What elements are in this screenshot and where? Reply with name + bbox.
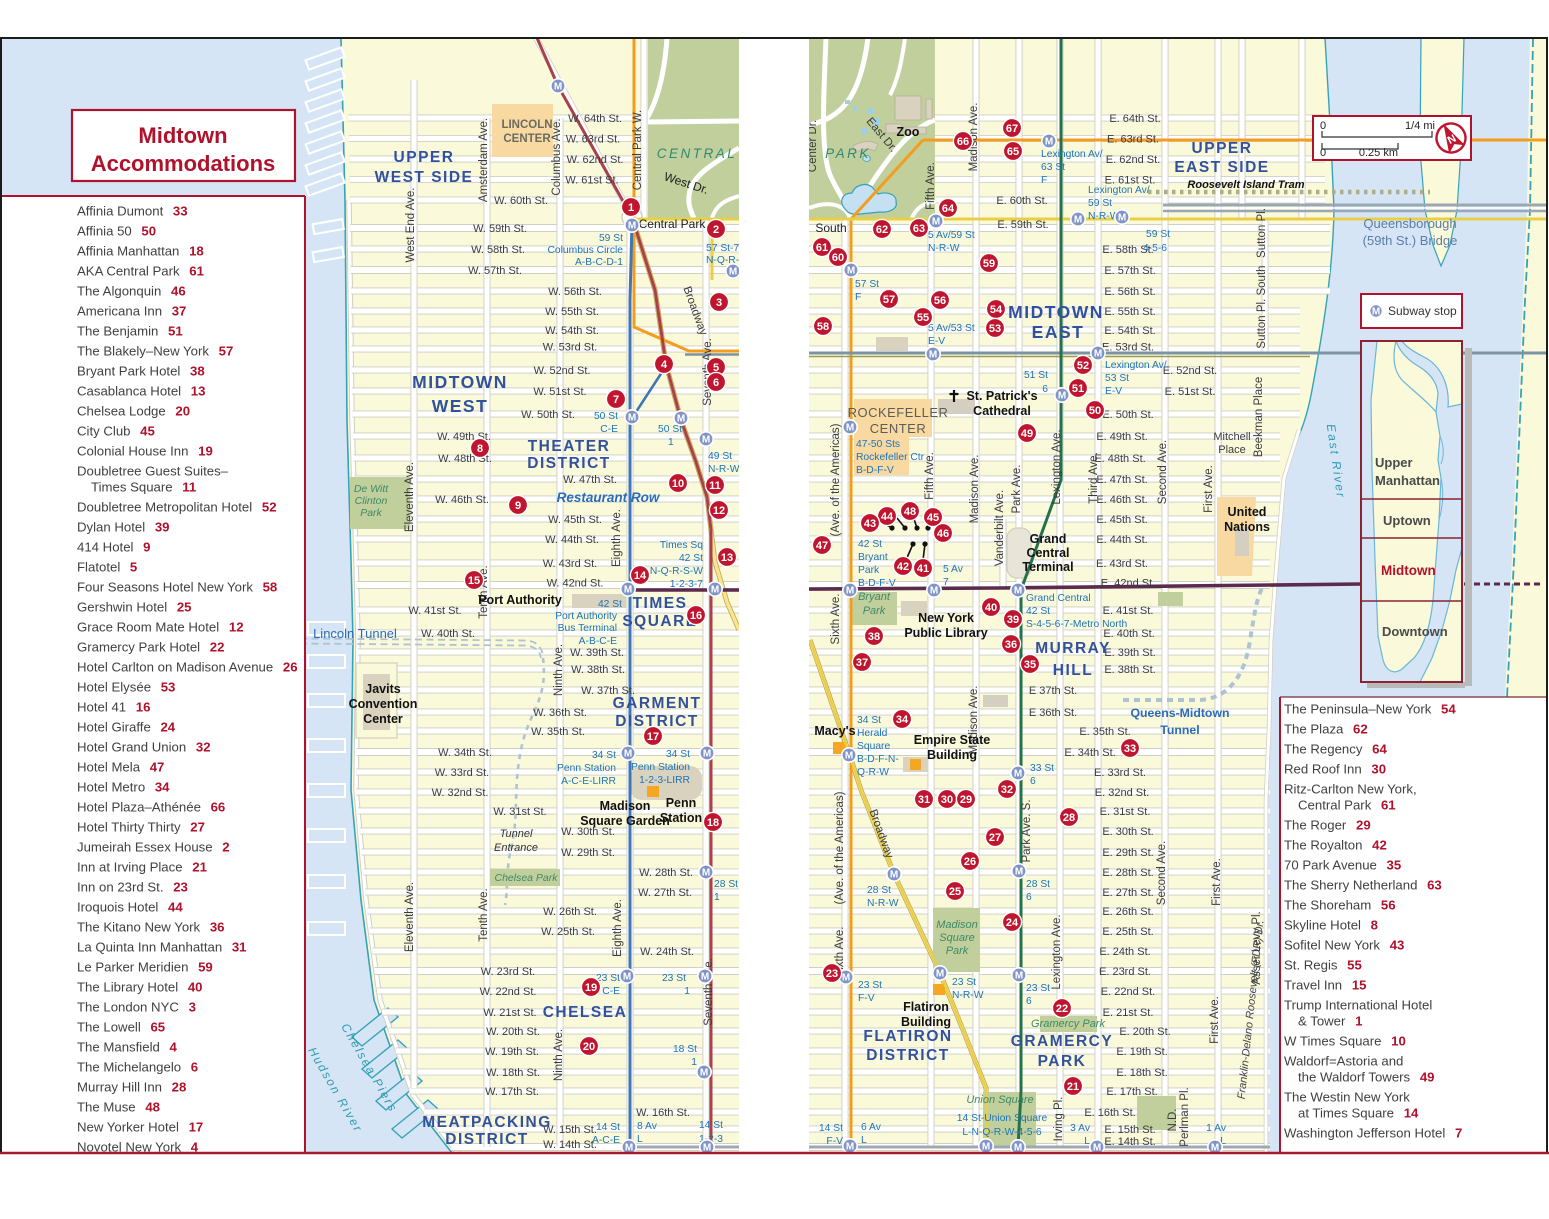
svg-text:E. 50th St.: E. 50th St. <box>1102 409 1153 421</box>
svg-text:Convention: Convention <box>349 697 418 711</box>
svg-text:W. 39th St.: W. 39th St. <box>570 647 624 659</box>
svg-text:MIDTOWN: MIDTOWN <box>1008 302 1104 322</box>
svg-text:E. 32nd St.: E. 32nd St. <box>1095 787 1149 799</box>
svg-text:31: 31 <box>918 794 930 806</box>
svg-text:W. 34th St.: W. 34th St. <box>438 747 492 759</box>
svg-text:West End Ave.: West End Ave. <box>405 187 417 262</box>
svg-text:Cathedral: Cathedral <box>973 404 1031 418</box>
svg-text:Manhattan: Manhattan <box>1375 473 1440 488</box>
svg-text:W. 47th St.: W. 47th St. <box>563 474 617 486</box>
svg-text:M: M <box>1372 307 1380 318</box>
svg-text:Square: Square <box>857 741 890 752</box>
svg-text:Lexington Av/: Lexington Av/ <box>1105 360 1167 371</box>
svg-text:42 St: 42 St <box>598 599 622 610</box>
svg-text:M: M <box>929 350 937 361</box>
svg-text:CENTER: CENTER <box>870 421 926 436</box>
svg-text:W. 24th St.: W. 24th St. <box>640 946 694 958</box>
svg-text:Mitchell: Mitchell <box>1213 431 1250 443</box>
svg-text:Central: Central <box>1026 546 1069 560</box>
svg-text:E. 27th St.: E. 27th St. <box>1102 887 1153 899</box>
svg-text:Doubletree Metropolitan Hotel: Doubletree Metropolitan Hotel 52 <box>77 500 277 515</box>
svg-text:M: M <box>1094 349 1102 360</box>
svg-text:Second Ave.: Second Ave. <box>1156 841 1168 905</box>
svg-text:Hotel Giraffe 24: Hotel Giraffe 24 <box>77 720 176 735</box>
svg-text:Eleventh Ave.: Eleventh Ave. <box>404 882 416 952</box>
svg-text:MIDTOWN: MIDTOWN <box>412 372 508 392</box>
svg-text:C-E: C-E <box>600 424 618 435</box>
svg-text:46: 46 <box>937 528 949 540</box>
svg-text:EAST: EAST <box>1032 322 1085 342</box>
svg-text:E 36th St.: E 36th St. <box>1029 707 1077 719</box>
svg-text:26: 26 <box>964 856 976 868</box>
svg-text:E. 41st St.: E. 41st St. <box>1103 605 1154 617</box>
svg-text:14 St: 14 St <box>596 1122 620 1133</box>
svg-text:La Quinta Inn Manhattan 31: La Quinta Inn Manhattan 31 <box>77 940 247 955</box>
svg-text:25: 25 <box>949 886 961 898</box>
svg-text:The Mansfield 4: The Mansfield 4 <box>77 1040 178 1055</box>
svg-text:Third Ave.: Third Ave. <box>1088 452 1100 504</box>
svg-text:Washington Jefferson Hotel 7: Washington Jefferson Hotel 7 <box>1284 1126 1462 1141</box>
svg-text:50 St: 50 St <box>658 424 682 435</box>
svg-text:Ninth Ave.: Ninth Ave. <box>553 1029 565 1081</box>
svg-text:30: 30 <box>941 794 953 806</box>
svg-text:E. 46th St.: E. 46th St. <box>1096 494 1147 506</box>
svg-text:M: M <box>1014 769 1022 780</box>
svg-text:Place: Place <box>1218 444 1246 456</box>
svg-text:W. 40th St.: W. 40th St. <box>421 628 475 640</box>
svg-text:F-V: F-V <box>826 1136 843 1147</box>
svg-text:M: M <box>1015 867 1023 878</box>
svg-text:W. 42nd St.: W. 42nd St. <box>547 577 604 589</box>
svg-text:The Kitano New York 36: The Kitano New York 36 <box>77 920 225 935</box>
svg-text:Beekman Place: Beekman Place <box>1253 377 1265 458</box>
svg-text:E. 23rd St.: E. 23rd St. <box>1099 966 1151 978</box>
svg-text:58: 58 <box>817 321 829 333</box>
svg-text:A-B-C-D-1: A-B-C-D-1 <box>575 257 623 268</box>
svg-text:E. 22nd St.: E. 22nd St. <box>1101 986 1155 998</box>
svg-text:Midtown: Midtown <box>1381 563 1436 578</box>
svg-text:Accommodations: Accommodations <box>91 151 276 176</box>
svg-text:32: 32 <box>1001 784 1013 796</box>
svg-text:E. 51st St.: E. 51st St. <box>1165 386 1216 398</box>
svg-text:Midtown: Midtown <box>138 123 227 148</box>
svg-text:Amsterdam Ave.: Amsterdam Ave. <box>478 118 490 202</box>
svg-text:E. 29th St.: E. 29th St. <box>1102 847 1153 859</box>
svg-text:51 St: 51 St <box>1024 370 1048 381</box>
svg-text:23 St: 23 St <box>662 973 686 984</box>
svg-text:L: L <box>637 1134 643 1145</box>
svg-text:42 St: 42 St <box>679 553 703 564</box>
svg-text:E. 35th St.: E. 35th St. <box>1079 726 1130 738</box>
svg-text:50 St: 50 St <box>594 411 618 422</box>
svg-text:Madison: Madison <box>600 799 651 813</box>
svg-text:United: United <box>1228 505 1267 519</box>
svg-text:51: 51 <box>1072 383 1084 395</box>
svg-text:LINCOLN: LINCOLN <box>501 119 552 131</box>
svg-text:Center Dr.: Center Dr. <box>807 120 819 172</box>
svg-text:E. 57th St.: E. 57th St. <box>1104 265 1155 277</box>
svg-text:Eighth Ave.: Eighth Ave. <box>611 509 623 567</box>
svg-text:27: 27 <box>989 832 1001 844</box>
svg-text:14 St-Union Square: 14 St-Union Square <box>957 1113 1048 1124</box>
svg-text:First Ave.: First Ave. <box>1203 465 1215 513</box>
svg-text:E. 20th St.: E. 20th St. <box>1119 1026 1170 1038</box>
svg-text:M: M <box>1014 586 1022 597</box>
svg-text:Square Garden: Square Garden <box>580 814 670 828</box>
svg-text:E. 31st St.: E. 31st St. <box>1100 806 1151 818</box>
svg-text:W. 38th St.: W. 38th St. <box>571 664 625 676</box>
svg-text:E. 56th St.: E. 56th St. <box>1104 286 1155 298</box>
svg-text:WEST SIDE: WEST SIDE <box>375 169 474 186</box>
svg-text:E. 49th St.: E. 49th St. <box>1096 431 1147 443</box>
svg-text:W. 41st St.: W. 41st St. <box>408 605 461 617</box>
svg-text:(59th St.) Bridge: (59th St.) Bridge <box>1363 233 1458 248</box>
svg-text:65: 65 <box>1007 146 1019 158</box>
svg-text:43: 43 <box>864 518 876 530</box>
svg-text:ROCKEFELLER: ROCKEFELLER <box>848 405 949 420</box>
svg-text:M: M <box>842 973 850 984</box>
svg-text:C-E: C-E <box>602 986 620 997</box>
svg-text:The Regency 64: The Regency 64 <box>1284 742 1387 757</box>
svg-text:Queens-Midtown: Queens-Midtown <box>1130 706 1229 720</box>
svg-text:M: M <box>701 972 709 983</box>
svg-text:E 37th St.: E 37th St. <box>1029 685 1077 697</box>
svg-text:W. 35th St.: W. 35th St. <box>531 726 585 738</box>
svg-text:22: 22 <box>1056 1003 1068 1015</box>
svg-text:Penn: Penn <box>666 796 697 810</box>
svg-text:Queensborough: Queensborough <box>1363 216 1456 231</box>
svg-text:CENTER: CENTER <box>503 133 551 145</box>
svg-text:M: M <box>890 870 898 881</box>
svg-text:E. 15th St.: E. 15th St. <box>1104 1124 1155 1136</box>
svg-text:Upper: Upper <box>1375 455 1413 470</box>
svg-text:59 St: 59 St <box>599 233 623 244</box>
svg-text:W. 64th St.: W. 64th St. <box>568 113 622 125</box>
svg-text:W. 28th St.: W. 28th St. <box>639 867 693 879</box>
svg-text:E. 17th St.: E. 17th St. <box>1106 1086 1157 1098</box>
svg-text:The Michelangelo 6: The Michelangelo 6 <box>77 1060 198 1075</box>
svg-text:59: 59 <box>983 258 995 270</box>
svg-text:E. 55th St.: E. 55th St. <box>1104 306 1155 318</box>
svg-text:Gramercy Park Hotel 22: Gramercy Park Hotel 22 <box>77 640 224 655</box>
svg-text:Trump International Hotel: Trump International Hotel <box>1284 998 1432 1013</box>
svg-text:St. Regis 55: St. Regis 55 <box>1284 958 1362 973</box>
svg-text:5 Av/53 St: 5 Av/53 St <box>928 323 975 334</box>
svg-text:De Witt: De Witt <box>354 483 389 495</box>
svg-text:E. 42nd St.: E. 42nd St. <box>1101 577 1155 589</box>
svg-text:E. 48th St.: E. 48th St. <box>1094 453 1145 465</box>
svg-text:M: M <box>846 423 854 434</box>
svg-text:W. 16th St.: W. 16th St. <box>636 1107 690 1119</box>
svg-text:1: 1 <box>714 892 720 903</box>
svg-text:47: 47 <box>816 540 828 552</box>
svg-text:17: 17 <box>647 731 659 743</box>
svg-text:1/4 mi: 1/4 mi <box>1405 120 1435 132</box>
svg-text:Hotel Plaza–Athénée 66: Hotel Plaza–Athénée 66 <box>77 800 225 815</box>
svg-text:L-N-Q-R-W-4-5-6: L-N-Q-R-W-4-5-6 <box>962 1127 1042 1138</box>
svg-text:E. 60th St.: E. 60th St. <box>996 195 1047 207</box>
svg-text:Madison Ave.: Madison Ave. <box>969 455 981 524</box>
svg-text:52: 52 <box>1077 360 1089 372</box>
svg-text:M: M <box>703 749 711 760</box>
svg-text:Herald: Herald <box>857 728 888 739</box>
svg-text:67: 67 <box>1006 123 1018 135</box>
svg-text:Public Library: Public Library <box>904 626 987 640</box>
svg-text:E-V: E-V <box>928 336 945 347</box>
svg-text:1: 1 <box>668 437 674 448</box>
svg-text:Empire State: Empire State <box>914 733 990 747</box>
svg-text:45: 45 <box>927 512 939 524</box>
svg-text:W. 51st St.: W. 51st St. <box>533 386 586 398</box>
svg-text:Doubletree Guest Suites–: Doubletree Guest Suites– <box>77 464 229 479</box>
svg-text:THEATER: THEATER <box>528 438 611 455</box>
svg-text:57: 57 <box>883 294 895 306</box>
svg-text:1: 1 <box>628 202 634 214</box>
svg-text:Javits: Javits <box>365 682 400 696</box>
svg-text:First Ave.: First Ave. <box>1209 996 1221 1044</box>
svg-text:E. 43rd St.: E. 43rd St. <box>1096 558 1148 570</box>
svg-text:Restaurant Row: Restaurant Row <box>557 490 661 505</box>
svg-text:E. 30th St.: E. 30th St. <box>1102 826 1153 838</box>
svg-text:DISTRICT: DISTRICT <box>527 455 610 472</box>
svg-text:35: 35 <box>1024 659 1036 671</box>
svg-text:Park Ave.: Park Ave. <box>1011 464 1023 513</box>
svg-text:59 St: 59 St <box>1146 229 1170 240</box>
svg-text:37: 37 <box>856 657 868 669</box>
svg-text:MURRAY: MURRAY <box>1035 640 1111 657</box>
svg-text:50: 50 <box>1089 405 1101 417</box>
svg-text:1: 1 <box>684 986 690 997</box>
svg-text:E. 28th St.: E. 28th St. <box>1102 867 1153 879</box>
svg-text:44: 44 <box>881 511 894 523</box>
svg-text:The Plaza 62: The Plaza 62 <box>1284 722 1368 737</box>
svg-text:10: 10 <box>672 478 684 490</box>
svg-text:Lexington Av/: Lexington Av/ <box>1088 185 1150 196</box>
svg-text:18: 18 <box>707 817 719 829</box>
svg-text:38: 38 <box>868 631 880 643</box>
svg-text:E. 54th St.: E. 54th St. <box>1104 325 1155 337</box>
svg-text:(Ave. of the Americas): (Ave. of the Americas) <box>834 791 846 904</box>
svg-text:Building: Building <box>901 1015 951 1029</box>
svg-text:Tenth Ave.: Tenth Ave. <box>478 888 490 942</box>
svg-text:28: 28 <box>1063 812 1075 824</box>
svg-text:W. 19th St.: W. 19th St. <box>485 1046 539 1058</box>
svg-text:F-V: F-V <box>858 993 875 1004</box>
svg-text:Hotel 41 16: Hotel 41 16 <box>77 700 150 715</box>
svg-text:Hotel Mela 47: Hotel Mela 47 <box>77 760 164 775</box>
svg-text:Hotel Carlton on Madison Avenu: Hotel Carlton on Madison Avenue 26 <box>77 660 298 675</box>
svg-text:M: M <box>845 751 853 762</box>
svg-text:33: 33 <box>1124 743 1136 755</box>
svg-text:8 Av: 8 Av <box>637 1121 658 1132</box>
svg-text:64: 64 <box>942 203 955 215</box>
svg-text:W. 23rd St.: W. 23rd St. <box>481 966 535 978</box>
svg-text:E. 47th St.: E. 47th St. <box>1096 474 1147 486</box>
svg-text:47-50 Sts: 47-50 Sts <box>856 439 900 450</box>
svg-text:14: 14 <box>634 570 647 582</box>
svg-text:B-D-F-V: B-D-F-V <box>858 578 896 589</box>
svg-text:18 St: 18 St <box>673 1044 697 1055</box>
svg-text:E. 52nd St.: E. 52nd St. <box>1163 365 1217 377</box>
svg-text:Tunnel: Tunnel <box>500 828 533 840</box>
svg-text:M: M <box>1058 391 1066 402</box>
svg-text:W. 56th St.: W. 56th St. <box>548 286 602 298</box>
svg-text:W. 20th St.: W. 20th St. <box>486 1026 540 1038</box>
svg-text:0.25 km: 0.25 km <box>1359 147 1398 159</box>
svg-text:M: M <box>1074 215 1082 226</box>
svg-text:E. 38th St.: E. 38th St. <box>1104 664 1155 676</box>
svg-text:Central Park W.: Central Park W. <box>632 110 644 191</box>
svg-text:Terminal: Terminal <box>1022 560 1073 574</box>
svg-text:Bryant: Bryant <box>858 552 888 563</box>
svg-text:Central Park: Central Park <box>639 217 707 231</box>
svg-text:5 Av/59 St: 5 Av/59 St <box>928 230 975 241</box>
svg-text:36: 36 <box>1005 639 1017 651</box>
svg-text:Second Ave.: Second Ave. <box>1157 440 1169 504</box>
svg-text:34 St: 34 St <box>666 749 690 760</box>
svg-text:W. 31st St.: W. 31st St. <box>493 806 546 818</box>
svg-text:A-B-C-E: A-B-C-E <box>579 636 617 647</box>
svg-text:W. 29th St.: W. 29th St. <box>561 847 615 859</box>
svg-text:Lexington Ave.: Lexington Ave. <box>1051 914 1063 989</box>
svg-text:Park: Park <box>858 565 880 576</box>
svg-text:PARK: PARK <box>825 146 871 161</box>
svg-text:Irving Pl.: Irving Pl. <box>1053 1097 1065 1142</box>
svg-text:N-R-W: N-R-W <box>952 990 984 1001</box>
svg-text:W. 32nd St.: W. 32nd St. <box>432 787 489 799</box>
svg-text:E. 25th St.: E. 25th St. <box>1102 926 1153 938</box>
svg-text:N-R-W: N-R-W <box>928 243 960 254</box>
svg-text:Red Roof Inn 30: Red Roof Inn 30 <box>1284 762 1386 777</box>
svg-text:Central Park 61: Central Park 61 <box>1298 798 1396 813</box>
svg-text:M: M <box>711 585 719 596</box>
svg-text:M: M <box>628 221 636 232</box>
svg-text:M: M <box>930 586 938 597</box>
svg-text:63: 63 <box>913 223 925 235</box>
svg-text:W. 21st St.: W. 21st St. <box>483 1007 536 1019</box>
svg-text:M: M <box>982 1142 990 1153</box>
svg-text:66: 66 <box>957 136 969 148</box>
svg-text:First Ave.: First Ave. <box>1211 858 1223 906</box>
svg-text:MEATPACKING: MEATPACKING <box>422 1114 552 1131</box>
svg-text:B-D-F-V: B-D-F-V <box>856 465 894 476</box>
svg-text:(Ave. of the Americas): (Ave. of the Americas) <box>830 423 842 536</box>
svg-text:Building: Building <box>927 748 977 762</box>
svg-text:1 Av: 1 Av <box>1206 1123 1227 1134</box>
svg-text:Iroquois Hotel 44: Iroquois Hotel 44 <box>77 900 183 915</box>
svg-text:The Lowell 65: The Lowell 65 <box>77 1020 165 1035</box>
svg-text:Sixth Ave.: Sixth Ave. <box>830 594 842 645</box>
svg-text:Bus Terminal: Bus Terminal <box>558 623 617 634</box>
svg-text:Rockefeller Ctr: Rockefeller Ctr <box>856 452 925 463</box>
svg-text:1-2-3-7: 1-2-3-7 <box>670 579 703 590</box>
svg-text:Ninth Ave.: Ninth Ave. <box>553 644 565 696</box>
svg-text:Lincoln Tunnel: Lincoln Tunnel <box>313 626 397 641</box>
svg-text:Fifth Ave.: Fifth Ave. <box>924 452 936 500</box>
svg-text:6: 6 <box>713 377 719 389</box>
svg-text:19: 19 <box>585 982 597 994</box>
svg-text:34 St: 34 St <box>857 715 881 726</box>
svg-text:Grand: Grand <box>1030 532 1067 546</box>
svg-text:57 St-7Av: 57 St-7Av <box>706 243 752 254</box>
svg-text:M: M <box>624 749 632 760</box>
svg-text:N-R-W: N-R-W <box>708 464 740 475</box>
svg-text:E. 18th St.: E. 18th St. <box>1116 1067 1167 1079</box>
svg-text:34: 34 <box>896 714 909 726</box>
svg-text:N-Q-R-S-W: N-Q-R-S-W <box>650 566 703 577</box>
svg-text:W. 25th St.: W. 25th St. <box>541 926 595 938</box>
svg-text:6: 6 <box>1030 776 1036 787</box>
svg-text:W. 17th St.: W. 17th St. <box>485 1086 539 1098</box>
svg-text:M: M <box>1015 971 1023 982</box>
svg-text:Sutton Pl.: Sutton Pl. <box>1256 208 1268 258</box>
svg-text:54: 54 <box>990 304 1003 316</box>
svg-text:W. 22nd St.: W. 22nd St. <box>480 986 537 998</box>
svg-text:6: 6 <box>1026 892 1032 903</box>
svg-text:21: 21 <box>1067 1081 1079 1093</box>
svg-text:E. 33rd St.: E. 33rd St. <box>1094 767 1146 779</box>
svg-text:7: 7 <box>613 394 619 406</box>
svg-text:6: 6 <box>1026 996 1032 1007</box>
svg-text:55: 55 <box>917 312 929 324</box>
svg-text:W. 61st St.: W. 61st St. <box>565 174 618 186</box>
svg-text:Downtown: Downtown <box>1382 624 1448 639</box>
svg-text:23: 23 <box>826 968 838 980</box>
svg-text:E. 14th St.: E. 14th St. <box>1104 1136 1155 1148</box>
svg-text:The Westin New York: The Westin New York <box>1284 1090 1410 1105</box>
svg-text:E-V: E-V <box>1105 386 1122 397</box>
svg-text:Waldorf=Astoria and: Waldorf=Astoria and <box>1284 1054 1403 1069</box>
svg-text:PARK: PARK <box>1038 1053 1087 1070</box>
svg-text:E. 39th St.: E. 39th St. <box>1104 647 1155 659</box>
svg-text:FLATIRON: FLATIRON <box>863 1028 952 1045</box>
svg-text:Nations: Nations <box>1224 520 1270 534</box>
svg-text:16: 16 <box>690 610 702 622</box>
svg-text:W. 50th St.: W. 50th St. <box>521 409 575 421</box>
svg-text:23 St: 23 St <box>858 980 882 991</box>
svg-text:The London NYC 3: The London NYC 3 <box>77 1000 196 1015</box>
svg-text:1: 1 <box>691 1057 697 1068</box>
svg-text:M: M <box>677 414 685 425</box>
svg-text:Lexington Ave.: Lexington Ave. <box>1051 429 1063 504</box>
svg-text:4-5-6: 4-5-6 <box>1143 243 1167 254</box>
svg-text:53: 53 <box>989 323 1001 335</box>
svg-text:UPPER: UPPER <box>394 149 455 166</box>
svg-text:39: 39 <box>1007 614 1019 626</box>
svg-text:Port Authority: Port Authority <box>555 611 618 622</box>
svg-text:48: 48 <box>904 506 916 518</box>
svg-text:W. 14th St.: W. 14th St. <box>543 1139 597 1151</box>
svg-text:23 St: 23 St <box>952 977 976 988</box>
svg-text:0: 0 <box>1320 147 1326 159</box>
svg-text:53 St: 53 St <box>1105 373 1129 384</box>
svg-text:N-R-W: N-R-W <box>867 898 899 909</box>
svg-text:W. 59th St.: W. 59th St. <box>473 223 527 235</box>
svg-text:F: F <box>1041 175 1047 186</box>
svg-text:DISTRICT: DISTRICT <box>445 1131 528 1148</box>
svg-text:Travel Inn 15: Travel Inn 15 <box>1284 978 1366 993</box>
svg-text:New York: New York <box>918 611 974 625</box>
svg-text:13: 13 <box>721 552 733 564</box>
svg-text:F: F <box>855 292 861 303</box>
svg-text:M: M <box>1118 213 1126 224</box>
svg-text:Macy's: Macy's <box>814 724 855 738</box>
svg-text:N-Q-R-W: N-Q-R-W <box>706 255 749 266</box>
svg-text:Park Ave. S.: Park Ave. S. <box>1021 799 1033 862</box>
svg-text:59 St: 59 St <box>1088 198 1112 209</box>
svg-text:23 St: 23 St <box>1026 983 1050 994</box>
svg-text:Park: Park <box>946 945 969 957</box>
